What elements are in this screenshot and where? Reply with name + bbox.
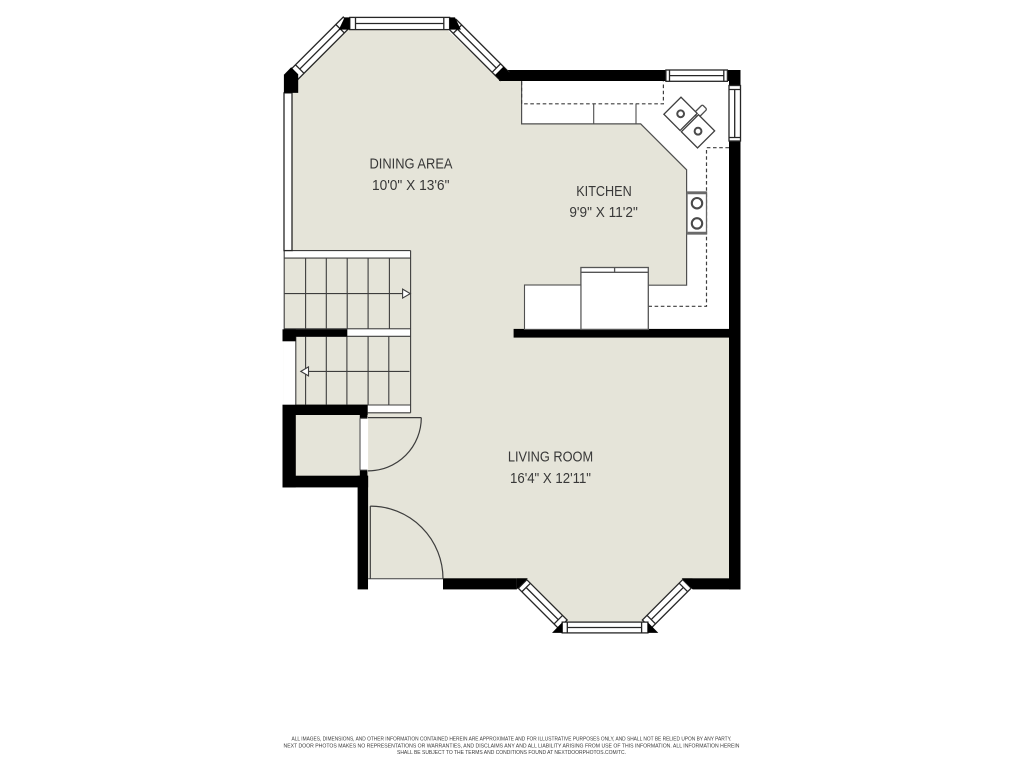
svg-text:ALL IMAGES, DIMENSIONS, AND OT: ALL IMAGES, DIMENSIONS, AND OTHER INFORM… <box>292 737 732 743</box>
svg-text:9'9" X 11'2": 9'9" X 11'2" <box>569 205 638 221</box>
svg-text:NEXT DOOR PHOTOS MAKES NO REPR: NEXT DOOR PHOTOS MAKES NO REPRESENTATION… <box>284 743 740 749</box>
svg-text:DINING AREA: DINING AREA <box>370 155 453 172</box>
svg-text:KITCHEN: KITCHEN <box>576 183 632 200</box>
svg-text:10'0" X 13'6": 10'0" X 13'6" <box>372 178 450 194</box>
svg-text:LIVING ROOM: LIVING ROOM <box>508 449 593 466</box>
svg-text:16'4" X 12'11": 16'4" X 12'11" <box>510 471 591 487</box>
svg-text:SHALL BE SUBJECT TO THE TERMS: SHALL BE SUBJECT TO THE TERMS AND CONDIT… <box>397 750 626 756</box>
